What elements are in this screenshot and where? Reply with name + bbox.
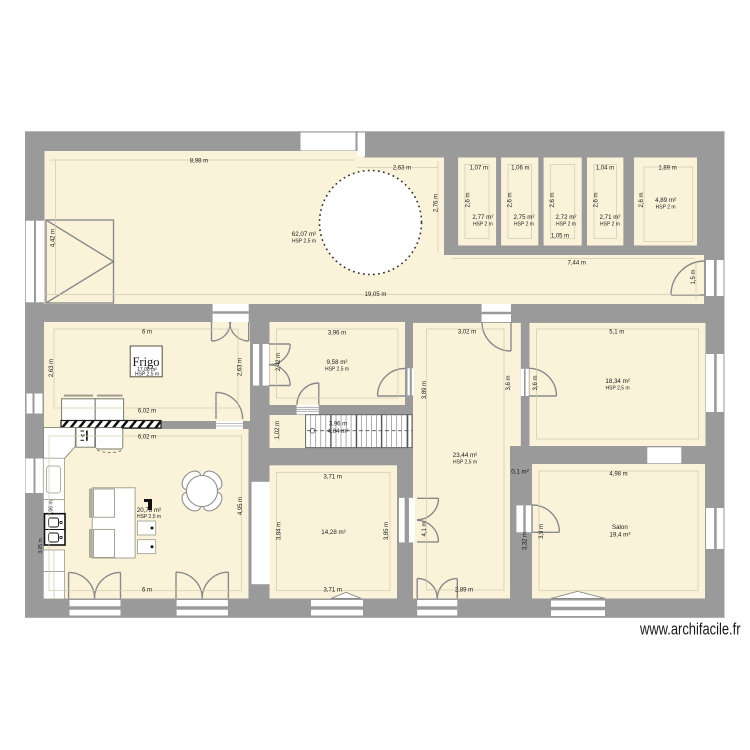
svg-text:2,42 m: 2,42 m [276, 353, 282, 371]
svg-text:6,02 m: 6,02 m [138, 409, 156, 415]
svg-text:3,6 m: 3,6 m [533, 375, 539, 390]
svg-text:HSP 2 m: HSP 2 m [656, 205, 676, 211]
svg-text:2,6 m: 2,6 m [508, 192, 514, 207]
svg-text:19,05 m: 19,05 m [365, 292, 387, 298]
svg-text:4,95 m: 4,95 m [238, 497, 244, 515]
svg-text:7,44 m: 7,44 m [568, 261, 586, 267]
svg-text:1,06 m: 1,06 m [49, 500, 55, 515]
svg-text:3,05 m: 3,05 m [38, 538, 44, 553]
svg-text:www.archifacile.fr: www.archifacile.fr [639, 619, 741, 638]
svg-text:3,02 m: 3,02 m [458, 330, 476, 336]
svg-text:6 m: 6 m [142, 330, 152, 336]
svg-text:3,9 m: 3,9 m [539, 524, 545, 539]
svg-text:8,98 m: 8,98 m [190, 159, 208, 165]
svg-text:3,71 m: 3,71 m [324, 588, 342, 594]
svg-text:2,63 m: 2,63 m [238, 358, 244, 376]
svg-text:3,96 m: 3,96 m [329, 422, 347, 428]
svg-text:4,89 m²: 4,89 m² [655, 197, 676, 204]
svg-text:HSP 2,5 m: HSP 2,5 m [137, 514, 161, 520]
svg-text:1,5 m: 1,5 m [691, 269, 697, 284]
svg-text:18,34 m²: 18,34 m² [605, 378, 629, 385]
svg-text:HSP 2,5 m: HSP 2,5 m [453, 460, 477, 466]
svg-text:4,42 m: 4,42 m [51, 229, 57, 247]
svg-text:HSP 2 m: HSP 2 m [514, 222, 534, 228]
svg-text:HSP 2 m: HSP 2 m [556, 222, 576, 228]
svg-text:0,1 m²: 0,1 m² [511, 469, 529, 476]
svg-text:19,4 m²: 19,4 m² [609, 532, 630, 539]
svg-text:2,6 m: 2,6 m [639, 192, 645, 207]
svg-text:2,89 m: 2,89 m [455, 588, 473, 594]
svg-text:HSP 2 m: HSP 2 m [473, 222, 493, 228]
svg-text:4,98 m: 4,98 m [609, 472, 627, 478]
svg-text:HSP 2 m: HSP 2 m [600, 222, 620, 228]
svg-text:4,04 m²: 4,04 m² [328, 428, 349, 435]
svg-text:3,85 m: 3,85 m [384, 522, 390, 540]
svg-text:23,44 m²: 23,44 m² [453, 452, 477, 459]
svg-text:HSP 2,5 m: HSP 2,5 m [606, 386, 630, 392]
svg-text:2,6 m: 2,6 m [594, 192, 600, 207]
svg-text:1,05 m: 1,05 m [551, 233, 569, 239]
svg-text:3,71 m: 3,71 m [324, 475, 342, 481]
svg-text:4,1 m: 4,1 m [422, 521, 428, 536]
svg-text:2,6 m: 2,6 m [465, 192, 471, 207]
svg-text:2,75 m²: 2,75 m² [514, 214, 535, 221]
svg-text:HSP 2,5 m: HSP 2,5 m [292, 239, 316, 245]
svg-text:3,6 m: 3,6 m [506, 375, 512, 390]
svg-text:2,72 m²: 2,72 m² [556, 214, 577, 221]
svg-text:6,02 m: 6,02 m [138, 435, 156, 441]
svg-text:1,04 m: 1,04 m [596, 166, 614, 172]
svg-text:HSP 2,5 m: HSP 2,5 m [325, 367, 349, 373]
svg-text:20,78 m²: 20,78 m² [137, 507, 161, 514]
svg-text:62,07 m²: 62,07 m² [292, 231, 316, 238]
svg-text:1,06 m: 1,06 m [511, 166, 529, 172]
svg-text:1,02 m: 1,02 m [275, 421, 281, 439]
svg-text:3,84 m: 3,84 m [276, 522, 282, 540]
svg-text:Salon: Salon [612, 524, 628, 531]
svg-text:9,58 m²: 9,58 m² [327, 359, 348, 366]
svg-text:5,1 m: 5,1 m [609, 330, 624, 336]
svg-text:2,76 m: 2,76 m [433, 194, 439, 212]
svg-text:1,07 m: 1,07 m [470, 166, 488, 172]
svg-text:6 m: 6 m [142, 588, 152, 594]
svg-text:2,63 m: 2,63 m [49, 359, 55, 377]
svg-text:3,32 m: 3,32 m [522, 532, 528, 550]
svg-text:3,89 m: 3,89 m [422, 381, 428, 399]
svg-text:14,28 m²: 14,28 m² [321, 529, 345, 536]
svg-text:HSP 2,5 m: HSP 2,5 m [135, 372, 159, 378]
svg-text:2,6 m: 2,6 m [550, 192, 556, 207]
svg-text:3,96 m: 3,96 m [328, 331, 346, 337]
svg-text:2,63 m: 2,63 m [393, 166, 411, 172]
svg-text:2,77 m²: 2,77 m² [472, 214, 493, 221]
svg-text:2,71 m²: 2,71 m² [600, 214, 621, 221]
svg-text:1,89 m: 1,89 m [658, 166, 676, 172]
